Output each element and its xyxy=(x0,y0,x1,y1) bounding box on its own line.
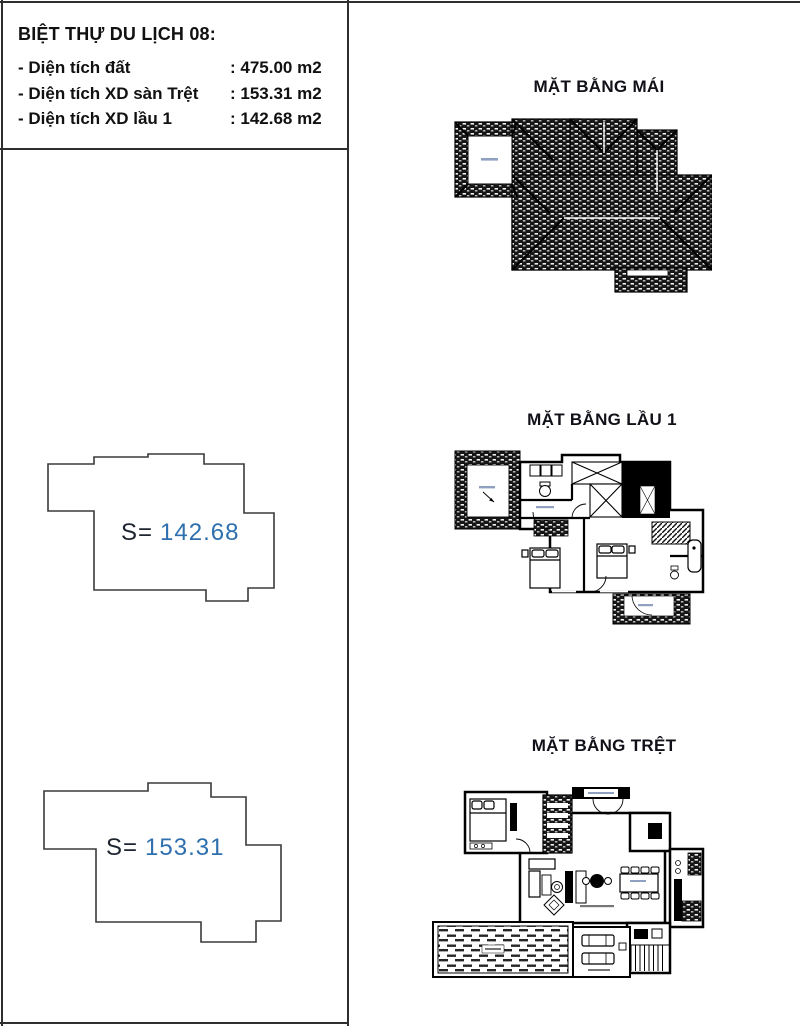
ground-plan-drawing xyxy=(430,783,708,982)
area-prefix: S= xyxy=(121,519,153,546)
top-border xyxy=(0,1,800,3)
area-value: 153.31 xyxy=(145,834,224,861)
info-row: - Diện tích XD sàn Trệt : 153.31 m2 xyxy=(18,81,338,107)
column-divider xyxy=(347,0,349,1026)
tiny-label-mark xyxy=(580,905,614,907)
pantry-block xyxy=(543,795,572,853)
tiny-label-mark xyxy=(536,506,554,508)
bottom-border xyxy=(0,1022,349,1024)
tiny-label-mark xyxy=(481,158,498,161)
pool xyxy=(433,922,573,977)
bed xyxy=(522,548,560,588)
wardrobe xyxy=(510,803,517,831)
tiny-label-mark xyxy=(600,591,628,593)
tv-cabinet xyxy=(565,871,573,903)
info-panel: BIỆT THỰ DU LỊCH 08: - Diện tích đất : 4… xyxy=(18,24,338,132)
floor1-plan-title: MẶT BẰNG LẦU 1 xyxy=(527,410,677,430)
toilet xyxy=(671,566,679,579)
area-label-ground: S=153.31 xyxy=(106,834,224,862)
info-row: - Diện tích XD lầu 1 : 142.68 m2 xyxy=(18,106,338,132)
area-label-floor1: S=142.68 xyxy=(121,519,239,547)
bathtub xyxy=(688,540,701,572)
floor1-plan-drawing xyxy=(452,448,708,628)
info-value: : 475.00 m2 xyxy=(230,55,322,81)
ground-outline-shape xyxy=(40,780,290,950)
area-value: 142.68 xyxy=(160,519,239,546)
roof-plan-title: MẶT BẰNG MÁI xyxy=(533,77,664,97)
info-label: - Diện tích XD sàn Trệt xyxy=(18,81,230,107)
balcony xyxy=(613,594,690,624)
info-label: - Diện tích đất xyxy=(18,55,230,81)
info-value: : 142.68 m2 xyxy=(230,106,322,132)
wall-chunk xyxy=(648,823,662,839)
entry xyxy=(572,787,630,814)
roof-slot xyxy=(627,270,668,276)
cabinet xyxy=(576,871,586,903)
drawing-sheet: BIỆT THỰ DU LỊCH 08: - Diện tích đất : 4… xyxy=(0,0,800,1026)
drain xyxy=(692,546,695,549)
terrace xyxy=(573,927,630,977)
info-title: BIỆT THỰ DU LỊCH 08: xyxy=(18,24,338,45)
hatch-block xyxy=(534,520,568,536)
roof-plan-drawing xyxy=(454,112,712,294)
left-border xyxy=(1,0,3,1026)
tiny-label-mark xyxy=(552,591,576,593)
dresser xyxy=(470,843,492,849)
area-prefix: S= xyxy=(106,834,138,861)
closet xyxy=(652,522,690,544)
info-label: - Diện tích XD lầu 1 xyxy=(18,106,230,132)
info-row: - Diện tích đất : 475.00 m2 xyxy=(18,55,338,81)
ground-plan-title: MẶT BẰNG TRỆT xyxy=(532,736,677,756)
info-value: : 153.31 m2 xyxy=(230,81,322,107)
info-divider xyxy=(0,148,348,150)
bed xyxy=(470,799,506,841)
stair-core xyxy=(622,462,670,518)
balcony xyxy=(455,451,520,529)
